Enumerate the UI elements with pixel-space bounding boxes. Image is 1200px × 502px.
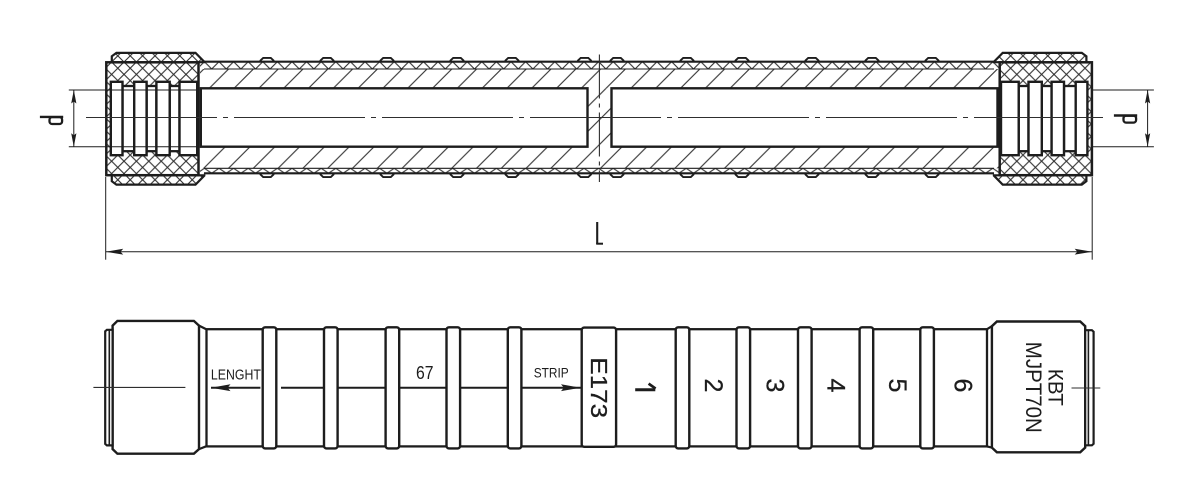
svg-text:2: 2	[699, 378, 727, 392]
svg-text:67: 67	[416, 362, 434, 383]
svg-text:MJPT70N: MJPT70N	[1021, 342, 1046, 433]
svg-text:E173: E173	[586, 357, 612, 418]
svg-text:КВТ: КВТ	[1044, 369, 1067, 406]
svg-text:6: 6	[949, 378, 977, 392]
svg-text:5: 5	[883, 378, 911, 392]
svg-text:STRIP: STRIP	[534, 365, 569, 381]
svg-text:LENGHT: LENGHT	[211, 368, 261, 384]
svg-text:3: 3	[760, 378, 788, 392]
svg-text:4: 4	[822, 378, 850, 392]
